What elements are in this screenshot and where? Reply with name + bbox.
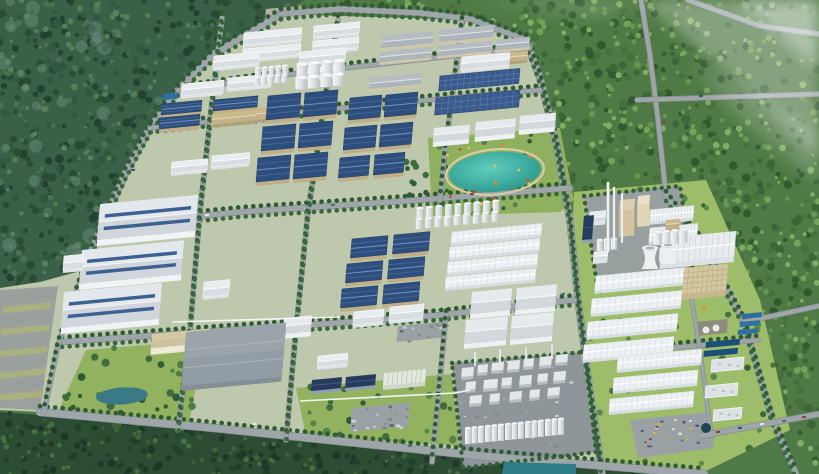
tree: [12, 194, 19, 201]
tree: [50, 217, 54, 221]
tank-body: [518, 423, 524, 439]
tree: [108, 173, 114, 179]
tree: [72, 65, 79, 72]
tree: [262, 460, 268, 466]
plant-unit: [529, 389, 540, 401]
tree: [782, 367, 787, 372]
tree: [501, 206, 505, 210]
tank-body: [416, 219, 423, 229]
tree: [235, 463, 243, 471]
tree: [53, 65, 61, 73]
tree: [7, 169, 12, 174]
tree: [34, 45, 38, 49]
tank-top: [525, 421, 531, 423]
tree: [117, 105, 124, 112]
rooftop-unit: [728, 364, 731, 366]
tree: [700, 153, 707, 160]
tree: [132, 133, 138, 139]
tree: [3, 202, 9, 208]
equipment: [644, 442, 646, 443]
tank-body: [505, 424, 511, 440]
tree: [83, 441, 88, 446]
tank-body: [472, 427, 478, 443]
tree: [25, 69, 31, 75]
tree: [769, 257, 775, 263]
tank-top: [485, 425, 491, 427]
tank-top: [558, 418, 564, 420]
cooling-tower-mouth: [664, 244, 673, 247]
tree: [93, 57, 97, 61]
tree: [186, 34, 190, 38]
tree: [743, 210, 751, 218]
tree: [101, 60, 106, 65]
tree: [186, 443, 191, 448]
tree: [713, 142, 720, 149]
tree: [333, 451, 341, 459]
tree: [56, 123, 61, 128]
tree: [556, 101, 562, 107]
tree: [566, 117, 571, 122]
tank-top: [492, 424, 498, 426]
tree: [176, 371, 182, 377]
tree: [116, 465, 121, 470]
tree: [12, 45, 19, 52]
tree: [800, 299, 804, 303]
tank-body: [454, 215, 461, 225]
plant-silo-group: [465, 426, 484, 444]
tree: [257, 462, 261, 466]
tree: [788, 255, 791, 258]
tree: [90, 36, 101, 47]
tree: [176, 20, 183, 27]
tree: [150, 109, 153, 112]
tree: [148, 85, 153, 90]
tree: [699, 174, 704, 179]
tree: [111, 28, 120, 37]
equipment: [394, 414, 396, 415]
tree: [676, 70, 680, 74]
tree: [785, 262, 790, 267]
tree: [735, 198, 741, 204]
equipment: [689, 428, 692, 430]
equipment: [430, 325, 434, 327]
equipment: [672, 428, 675, 430]
tree: [90, 115, 95, 120]
tree: [586, 27, 591, 32]
tree: [756, 145, 761, 150]
tree: [17, 86, 22, 91]
tree: [561, 71, 569, 79]
equipment: [485, 417, 487, 418]
tree: [85, 89, 93, 97]
vehicle: [470, 193, 474, 195]
tree: [66, 392, 71, 397]
tree: [685, 111, 690, 116]
tree: [199, 35, 204, 40]
tree: [614, 41, 619, 46]
tree: [542, 24, 547, 29]
tree: [574, 25, 578, 29]
tree: [43, 26, 49, 32]
tank-body: [482, 213, 489, 223]
tree: [56, 57, 62, 63]
vehicle: [738, 427, 742, 429]
tree: [787, 371, 793, 377]
plant-unit: [547, 387, 560, 399]
pond-east: [701, 423, 711, 433]
tree: [108, 93, 114, 99]
tank-body: [436, 206, 443, 216]
tank-body: [597, 240, 603, 251]
tree: [449, 195, 452, 198]
tree: [812, 260, 818, 266]
tree: [256, 8, 265, 17]
tank-body: [474, 203, 481, 213]
tree: [774, 298, 782, 306]
tree: [14, 77, 20, 83]
tree: [558, 59, 564, 65]
lakeside-office: [519, 113, 556, 135]
tree: [248, 450, 253, 455]
tree: [153, 80, 157, 84]
roof: [539, 356, 552, 366]
equipment: [682, 423, 684, 424]
tank-top: [309, 61, 320, 65]
tree: [606, 122, 613, 129]
tank-top: [320, 73, 331, 77]
tree: [74, 458, 80, 464]
tree: [45, 1, 49, 5]
vehicle: [716, 431, 720, 433]
tree: [713, 190, 720, 197]
roof: [523, 358, 534, 367]
tree: [635, 33, 641, 39]
tree: [19, 211, 24, 216]
clarifier-tank: [703, 327, 710, 334]
tree: [804, 288, 812, 296]
vehicle: [252, 423, 256, 425]
tree: [649, 146, 652, 149]
tree: [661, 27, 665, 31]
tank-top: [268, 75, 274, 77]
tree: [669, 27, 673, 31]
plant-unit: [489, 393, 500, 405]
tree: [58, 50, 64, 56]
equipment: [496, 413, 499, 415]
roof: [461, 367, 474, 377]
equipment: [674, 419, 677, 421]
tank-top: [465, 427, 471, 429]
tree: [790, 234, 795, 239]
tree: [810, 367, 814, 371]
tank-top: [680, 228, 688, 231]
rooftop-unit: [728, 414, 731, 416]
tree: [16, 237, 24, 245]
tree: [723, 198, 727, 202]
tree: [803, 261, 811, 269]
flat-roof-building: [713, 407, 742, 421]
tree: [625, 146, 629, 150]
tank-top: [262, 66, 268, 68]
tree: [84, 125, 88, 129]
tree: [590, 186, 594, 190]
tree: [459, 148, 462, 151]
tree: [408, 458, 416, 466]
tree: [154, 61, 158, 65]
tree: [127, 446, 131, 450]
tree: [803, 359, 808, 364]
tree: [584, 82, 591, 89]
equipment: [649, 445, 652, 447]
tree: [152, 466, 157, 471]
equipment: [686, 438, 688, 439]
equipment: [412, 328, 415, 330]
tree: [374, 455, 380, 461]
tree: [57, 97, 67, 107]
vehicle: [760, 423, 764, 425]
tree: [782, 385, 786, 389]
tree: [167, 389, 175, 397]
tree: [801, 275, 807, 281]
roof: [553, 371, 566, 381]
equipment: [551, 366, 554, 368]
tree: [44, 42, 49, 47]
tree: [9, 17, 13, 21]
tree: [104, 150, 111, 157]
tree: [138, 114, 144, 120]
equipment: [390, 424, 394, 427]
plant-unit: [555, 354, 568, 366]
equipment: [366, 427, 369, 429]
tree: [153, 438, 158, 443]
equipment: [658, 423, 662, 425]
tree: [688, 106, 691, 109]
tree: [763, 289, 769, 295]
tree: [1, 83, 7, 89]
tree: [19, 20, 22, 23]
tank-body: [680, 230, 688, 243]
vehicle: [561, 293, 565, 295]
tree: [61, 433, 69, 441]
equipment: [556, 401, 559, 403]
tank-top: [254, 76, 260, 78]
tree: [155, 407, 159, 411]
tree: [725, 177, 734, 186]
tank-top: [426, 206, 433, 208]
tree: [5, 20, 17, 32]
tree: [297, 443, 302, 448]
tree: [762, 205, 767, 210]
tree: [575, 58, 578, 61]
rooftop-unit: [712, 389, 715, 391]
tree: [588, 102, 595, 109]
tree: [814, 251, 818, 255]
tree: [542, 51, 548, 57]
tree: [163, 433, 169, 439]
tree: [648, 122, 654, 128]
tree: [60, 16, 65, 21]
tree: [68, 138, 75, 145]
tree: [440, 459, 445, 464]
tree: [57, 443, 62, 448]
tree: [793, 337, 799, 343]
equipment: [681, 440, 684, 442]
tree: [275, 443, 280, 448]
tree: [527, 19, 533, 25]
tree: [567, 162, 571, 166]
tree: [67, 199, 70, 202]
tree: [158, 51, 165, 58]
roof: [483, 379, 498, 389]
tree: [189, 397, 194, 402]
tree: [148, 446, 154, 452]
tree: [34, 126, 39, 131]
tree: [110, 14, 116, 20]
tank-top: [454, 214, 461, 216]
tree: [721, 150, 726, 155]
tree: [174, 38, 182, 46]
tree: [40, 166, 45, 171]
tree: [597, 41, 606, 50]
tree: [638, 24, 642, 28]
tree: [608, 109, 613, 114]
chimney-stack: [551, 344, 553, 359]
tree: [93, 189, 101, 197]
tree: [10, 39, 13, 42]
tree: [77, 5, 83, 11]
rooftop-unit: [736, 415, 739, 417]
tree: [67, 158, 72, 163]
tree: [87, 201, 94, 208]
tree: [92, 146, 96, 150]
tree: [565, 48, 569, 52]
tree: [739, 133, 743, 137]
roof: [713, 407, 742, 421]
tree: [105, 436, 111, 442]
tree: [68, 56, 74, 62]
equipment: [351, 420, 355, 423]
roof: [711, 357, 744, 372]
tree: [567, 65, 572, 70]
tree: [7, 265, 11, 269]
tree: [47, 424, 51, 428]
tree: [729, 161, 737, 169]
tree: [798, 353, 803, 358]
tree: [146, 97, 152, 103]
tree: [152, 71, 157, 76]
tree: [597, 409, 603, 415]
tree: [285, 453, 290, 458]
tank-top: [255, 67, 261, 69]
tree: [101, 141, 107, 147]
tank-top: [493, 200, 500, 202]
tree: [740, 239, 745, 244]
tree: [649, 133, 655, 139]
tree: [752, 172, 757, 177]
tree: [186, 24, 190, 28]
tree: [88, 155, 94, 161]
tree: [811, 211, 817, 217]
tank-top: [552, 418, 558, 420]
tree: [586, 76, 589, 79]
tank-top: [538, 420, 544, 422]
tree: [32, 446, 38, 452]
tree: [710, 167, 718, 175]
tree: [44, 106, 49, 111]
equipment: [480, 377, 482, 378]
rooftop-unit: [737, 365, 740, 367]
tree: [43, 208, 52, 217]
tank-top: [482, 211, 489, 213]
tree: [776, 278, 783, 285]
blue-factory: [382, 282, 420, 308]
tree: [14, 431, 20, 437]
blue-warehouse: [256, 155, 291, 186]
tree: [794, 367, 801, 374]
tree: [24, 119, 27, 122]
tree: [801, 366, 808, 373]
tank-body: [512, 423, 518, 439]
tree: [2, 110, 10, 118]
tank-top: [269, 66, 275, 68]
tree: [619, 99, 627, 107]
tree: [702, 305, 707, 310]
tree: [38, 425, 44, 431]
tree: [613, 29, 618, 34]
tree: [501, 144, 504, 147]
blue-warehouse: [261, 124, 296, 155]
rooftop-unit: [718, 363, 721, 365]
tree: [580, 27, 587, 34]
tree: [297, 454, 303, 460]
tree: [804, 199, 808, 203]
equipment: [352, 425, 355, 427]
equipment: [354, 429, 357, 431]
tank-body: [435, 217, 442, 227]
tree: [582, 119, 590, 127]
tree: [12, 157, 18, 163]
tree: [627, 21, 631, 25]
tree: [238, 21, 244, 27]
tree: [69, 46, 74, 51]
tree: [48, 173, 56, 181]
tree: [43, 464, 48, 469]
equipment: [382, 427, 387, 430]
tank-body: [426, 207, 433, 217]
tree: [732, 199, 735, 202]
blue-factory: [392, 232, 430, 258]
tree: [48, 430, 52, 434]
tree: [449, 5, 453, 9]
tree: [303, 462, 308, 467]
tree: [102, 359, 110, 367]
tree: [643, 69, 649, 75]
tree: [723, 143, 730, 150]
tree: [309, 465, 315, 471]
tree: [98, 90, 102, 94]
tree: [449, 436, 456, 443]
tree: [757, 187, 765, 195]
tank-top: [444, 215, 451, 217]
tree: [794, 240, 801, 247]
tree: [30, 140, 43, 153]
rooftop-unit: [720, 413, 723, 415]
tree: [598, 164, 607, 173]
tree: [32, 101, 40, 109]
tree: [32, 207, 40, 215]
tree: [13, 148, 21, 156]
tree: [128, 90, 131, 93]
